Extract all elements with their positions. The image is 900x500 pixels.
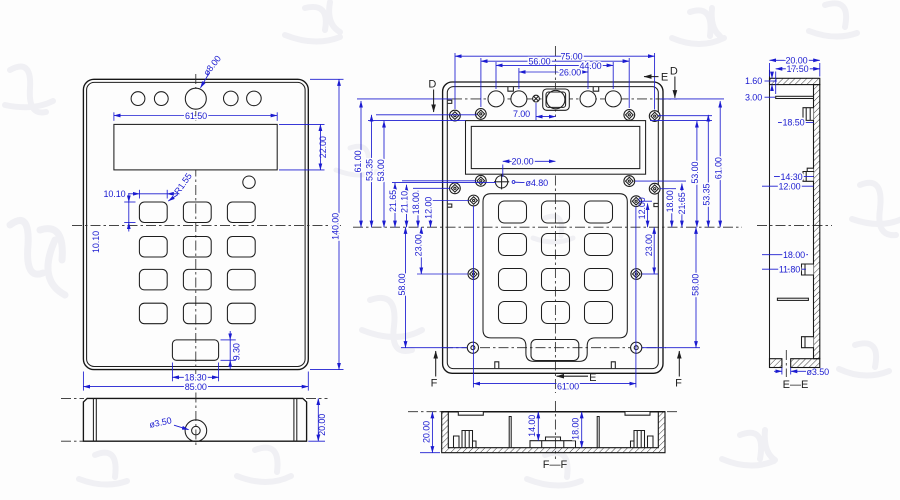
svg-text:3.00: 3.00 — [745, 92, 762, 102]
svg-text:12.00: 12.00 — [778, 181, 800, 191]
svg-text:10.10: 10.10 — [104, 189, 126, 199]
svg-text:F: F — [675, 378, 682, 390]
svg-text:44.00: 44.00 — [579, 61, 601, 71]
svg-text:23.00: 23.00 — [644, 234, 654, 256]
svg-text:ø3.50: ø3.50 — [148, 415, 172, 429]
svg-text:9.30: 9.30 — [232, 343, 242, 360]
svg-text:ø4.80: ø4.80 — [526, 178, 549, 188]
svg-text:53.35: 53.35 — [364, 159, 374, 181]
svg-text:61.00: 61.00 — [557, 382, 579, 392]
svg-text:D: D — [670, 66, 678, 78]
svg-text:61.00: 61.00 — [714, 157, 724, 179]
svg-text:20.00: 20.00 — [317, 414, 327, 436]
svg-text:14.30: 14.30 — [780, 172, 802, 182]
svg-text:20.00: 20.00 — [511, 157, 533, 167]
svg-text:85.00: 85.00 — [185, 382, 207, 392]
svg-text:140.00: 140.00 — [331, 213, 341, 240]
svg-text:61.00: 61.00 — [353, 150, 363, 172]
svg-text:58.00: 58.00 — [690, 274, 700, 296]
svg-text:18.00: 18.00 — [783, 250, 805, 260]
svg-text:F: F — [431, 378, 438, 390]
svg-text:18.00: 18.00 — [570, 418, 580, 440]
svg-text:18.00: 18.00 — [665, 190, 675, 212]
svg-text:26.00: 26.00 — [559, 67, 581, 77]
svg-text:53.35: 53.35 — [701, 183, 711, 205]
svg-text:11.80: 11.80 — [779, 264, 800, 274]
svg-text:17.50: 17.50 — [786, 64, 808, 74]
svg-text:22.00: 22.00 — [318, 136, 328, 158]
svg-text:53.00: 53.00 — [376, 159, 386, 181]
svg-text:14.00: 14.00 — [527, 415, 537, 437]
svg-text:21.65: 21.65 — [388, 190, 398, 212]
svg-text:21.65: 21.65 — [677, 192, 687, 214]
svg-text:12.00: 12.00 — [637, 197, 647, 219]
svg-text:58.00: 58.00 — [397, 273, 407, 295]
svg-text:E: E — [661, 71, 668, 83]
svg-text:18.00: 18.00 — [411, 192, 421, 214]
svg-text:F—F: F—F — [543, 459, 568, 471]
svg-text:D: D — [428, 79, 436, 91]
svg-text:61.50: 61.50 — [185, 111, 207, 121]
svg-text:20.00: 20.00 — [421, 421, 431, 443]
svg-text:23.00: 23.00 — [413, 234, 423, 256]
svg-text:E—E: E—E — [783, 379, 809, 391]
svg-text:18.50: 18.50 — [782, 118, 804, 128]
svg-text:R1.55: R1.55 — [172, 171, 194, 196]
svg-text:1.60: 1.60 — [745, 76, 762, 86]
svg-text:53.00: 53.00 — [690, 161, 700, 183]
svg-text:ø3.50: ø3.50 — [807, 367, 830, 377]
svg-text:E: E — [589, 372, 596, 384]
svg-text:12.00: 12.00 — [423, 197, 433, 219]
svg-text:10.10: 10.10 — [91, 231, 101, 253]
svg-text:ø8.00: ø8.00 — [201, 54, 223, 78]
svg-text:7.00: 7.00 — [513, 109, 530, 119]
svg-text:21.10: 21.10 — [400, 191, 410, 213]
